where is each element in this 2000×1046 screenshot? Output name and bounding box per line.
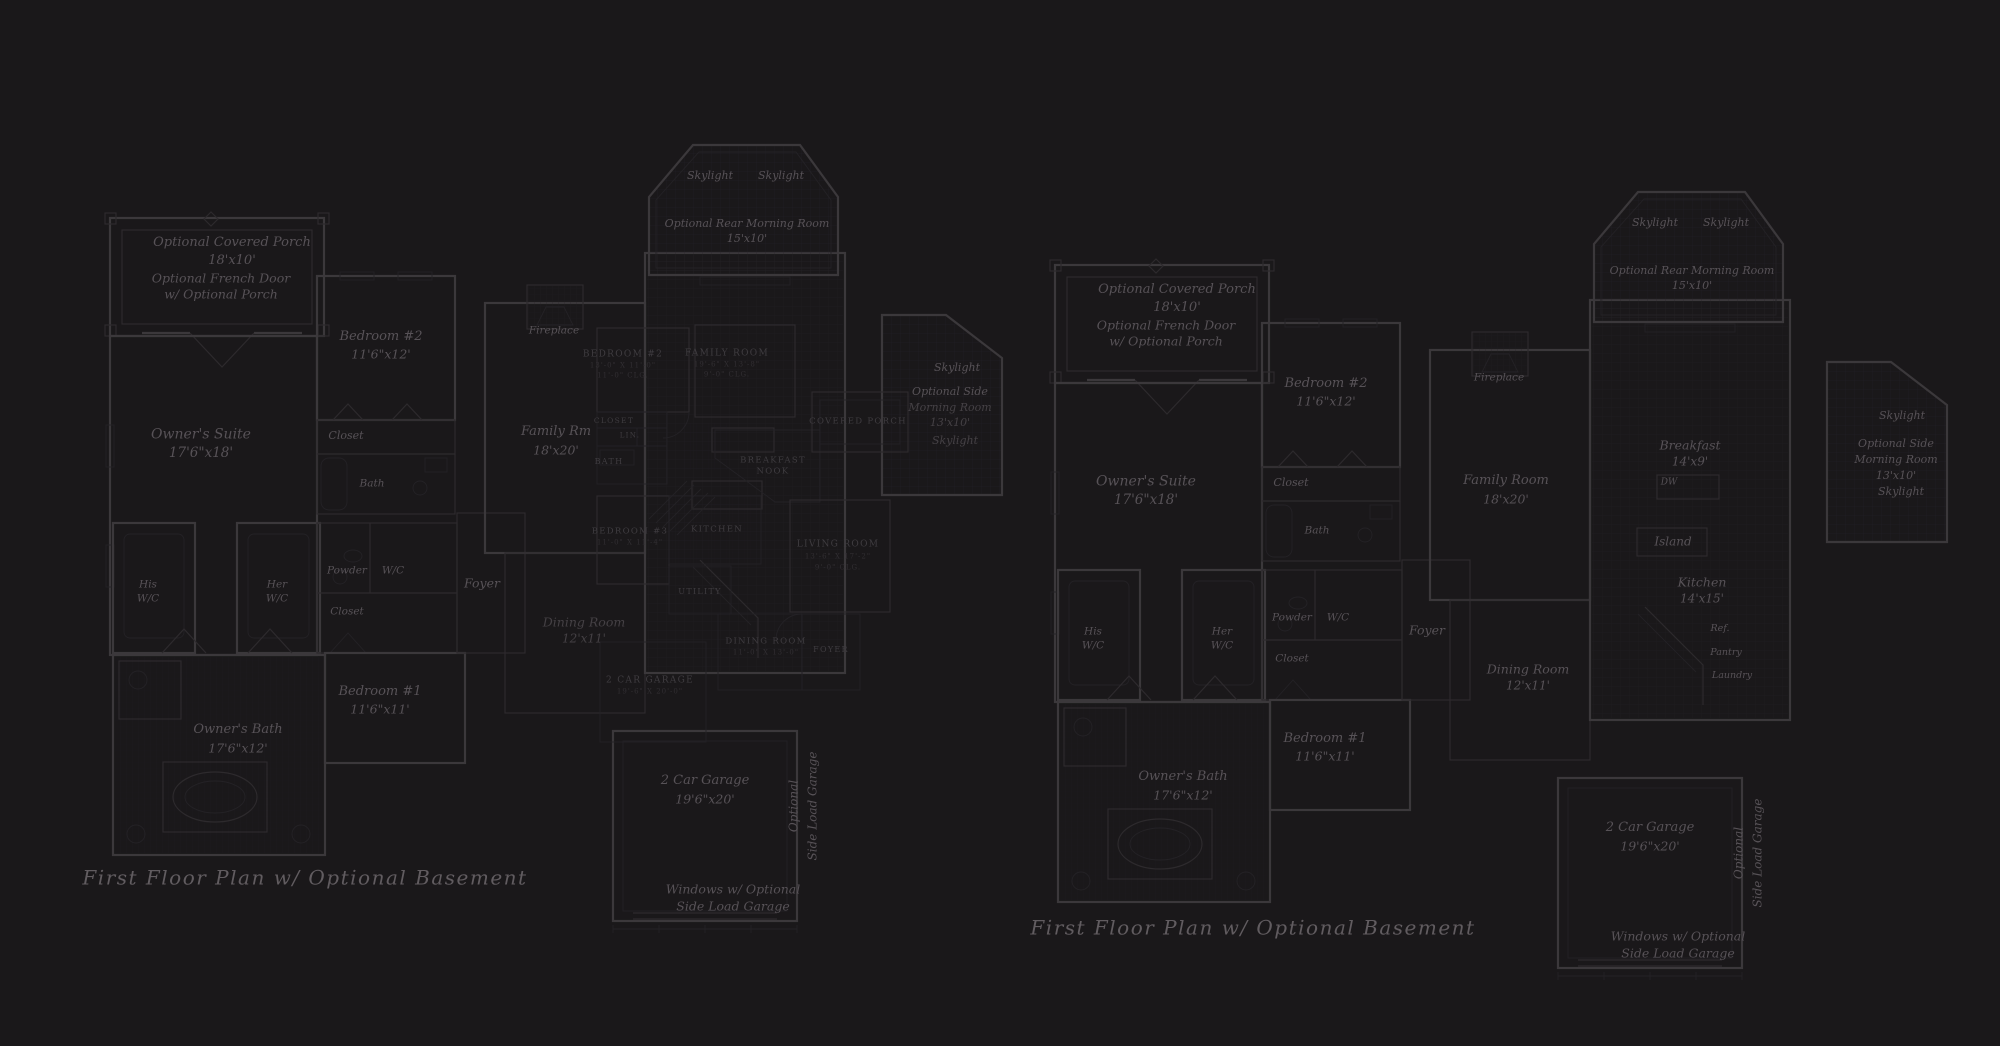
label-1: 18'x10': [208, 254, 256, 268]
label-20: Fireplace: [529, 325, 579, 336]
label-102: 12'x11': [1506, 680, 1550, 693]
label-55: BEDROOM #3: [592, 528, 669, 537]
label-88: Skylight: [1632, 217, 1678, 229]
label-22: Skylight: [758, 170, 804, 182]
label-28: 13'x10': [930, 417, 970, 429]
right-side-morning-room-label: Optional Side: [1858, 438, 1934, 450]
left-rear-morning-room-label: Optional Rear Morning Room: [665, 218, 830, 230]
label-113: 19'6"x20': [1620, 839, 1679, 852]
right-french-door-label: Optional French Door: [1097, 318, 1235, 331]
right-family-room-label: Family Room: [1463, 474, 1549, 488]
label-5: 17'6"x18': [169, 446, 233, 460]
label-99: Pantry: [1710, 648, 1741, 658]
label-35: 17'6"x12': [208, 741, 267, 754]
left-owners-suite-label: Owner's Suite: [151, 428, 251, 443]
blueprint-canvas: Optional Covered Porch18'x10'Optional Fr…: [0, 0, 2000, 1046]
label-116: Windows w/ Optional: [1611, 929, 1745, 942]
label-58: LIVING ROOM: [797, 540, 880, 549]
label-62: 11'-0" X 13'-0": [733, 649, 799, 656]
label-104: 11'6"x11': [1295, 749, 1354, 762]
left-dining-room-label: Dining Room: [543, 615, 625, 628]
label-93: 14'x9': [1672, 456, 1708, 469]
label-54: KITCHEN: [691, 526, 743, 535]
label-94: DW: [1661, 478, 1677, 487]
label-98: Ref.: [1711, 624, 1730, 634]
label-114: Optional: [1733, 827, 1746, 879]
label-57: UTILITY: [678, 588, 721, 596]
label-115: Side Load Garage: [1752, 799, 1765, 908]
right-kitchen-label: Kitchen: [1678, 575, 1727, 588]
label-87: Fireplace: [1474, 372, 1524, 383]
label-107: Skylight: [1879, 410, 1925, 422]
left-owners-bath-label: Owner's Bath: [193, 723, 282, 737]
right-bedroom-1-label: Bedroom #1: [1283, 732, 1366, 746]
label-41: Side Load Garage: [676, 899, 789, 912]
label-86: 18'x20': [1483, 492, 1529, 505]
label-38: Optional: [788, 780, 801, 832]
label-12: Her: [267, 579, 287, 590]
label-72: 17'6"x18': [1114, 493, 1178, 507]
label-65: 2 CAR GARAGE: [606, 676, 694, 685]
right-bedroom-2-label: Bedroom #2: [1284, 377, 1367, 391]
label-80: W/C: [1211, 640, 1233, 651]
label-47: 19'-6" X 13'-8": [694, 361, 760, 368]
right-island-label: Island: [1654, 536, 1691, 549]
label-70: w/ Optional Porch: [1109, 334, 1223, 347]
label-63: FOYER: [813, 646, 849, 654]
right-owners-bath-label: Owner's Bath: [1138, 770, 1227, 784]
right-breakfast-label: Breakfast: [1659, 438, 1720, 451]
label-60: 9'-0" CLG.: [815, 564, 861, 571]
label-78: W/C: [1082, 640, 1104, 651]
label-50: LIN.: [620, 432, 641, 439]
label-82: W/C: [1327, 612, 1349, 623]
label-9: Bath: [360, 478, 385, 489]
label-49: CLOSET: [594, 417, 634, 425]
label-39: Side Load Garage: [807, 752, 820, 861]
label-11: W/C: [137, 593, 159, 604]
label-66: 19'-6" X 20'-0": [617, 688, 683, 695]
label-52: BREAKFAST: [740, 457, 806, 466]
label-106: 17'6"x12': [1153, 788, 1212, 801]
label-8: Closet: [328, 430, 363, 442]
label-3: w/ Optional Porch: [164, 287, 278, 300]
label-100: Laundry: [1712, 671, 1752, 681]
label-21: Skylight: [687, 170, 733, 182]
label-77: His: [1084, 626, 1102, 637]
label-37: 19'6"x20': [675, 792, 734, 805]
right-plan-title: First Floor Plan w/ Optional Basement: [1030, 918, 1475, 939]
label-15: W/C: [382, 565, 404, 576]
label-79: Her: [1212, 626, 1232, 637]
left-french-door-label: Optional French Door: [152, 271, 290, 284]
label-7: 11'6"x12': [351, 347, 410, 360]
label-75: Closet: [1273, 477, 1308, 489]
label-43: BEDROOM #2: [583, 350, 663, 359]
label-51: BATH: [595, 458, 624, 466]
right-foyer-label: Foyer: [1409, 623, 1445, 636]
label-83: Closet: [1275, 653, 1309, 664]
label-89: Skylight: [1703, 217, 1749, 229]
label-74: 11'6"x12': [1296, 394, 1355, 407]
label-59: 13'-6" X 17'-2": [805, 553, 871, 560]
label-110: 13'x10': [1876, 470, 1916, 482]
label-91: 15'x10': [1672, 280, 1712, 292]
left-foyer-label: Foyer: [464, 576, 500, 589]
label-10: His: [139, 579, 157, 590]
left-porch-label: Optional Covered Porch: [153, 236, 311, 250]
left-bedroom-1-label: Bedroom #1: [338, 685, 421, 699]
label-46: FAMILY ROOM: [685, 349, 769, 358]
label-31: 12'x11': [562, 633, 606, 646]
label-64: COVERED PORCH: [809, 418, 907, 427]
label-16: Closet: [330, 606, 364, 617]
label-97: 14'x15': [1680, 593, 1724, 606]
right-owners-suite-label: Owner's Suite: [1096, 475, 1196, 490]
label-45: 11'-0" CLG.: [597, 372, 649, 379]
label-53: NOOK: [757, 468, 790, 477]
right-garage-label: 2 Car Garage: [1606, 821, 1695, 835]
left-bedroom-2-label: Bedroom #2: [339, 330, 422, 344]
label-33: 11'6"x11': [350, 702, 409, 715]
label-111: Skylight: [1878, 486, 1924, 498]
label-40: Windows w/ Optional: [666, 882, 800, 895]
label-117: Side Load Garage: [1621, 946, 1734, 959]
left-garage-label: 2 Car Garage: [661, 774, 750, 788]
label-14: Powder: [327, 565, 367, 576]
label-44: 13'-0" X 11'-0": [590, 362, 656, 369]
label-24: 15'x10': [727, 233, 767, 245]
label-29: Skylight: [932, 435, 978, 447]
left-side-morning-room-label: Optional Side: [912, 386, 988, 398]
left-family-room-label: Family Rm: [521, 425, 591, 439]
labels-layer: Optional Covered Porch18'x10'Optional Fr…: [0, 0, 2000, 1046]
label-56: 11'-0" X 11'-4": [597, 539, 663, 546]
label-109: Morning Room: [1854, 454, 1937, 466]
label-76: Bath: [1305, 525, 1330, 536]
label-19: 18'x20': [533, 443, 579, 456]
left-plan-title: First Floor Plan w/ Optional Basement: [82, 868, 527, 889]
label-68: 18'x10': [1153, 301, 1201, 315]
label-13: W/C: [266, 593, 288, 604]
right-dining-room-label: Dining Room: [1487, 662, 1569, 675]
label-25: Skylight: [934, 362, 980, 374]
right-porch-label: Optional Covered Porch: [1098, 283, 1256, 297]
label-61: DINING ROOM: [725, 638, 806, 647]
label-81: Powder: [1272, 612, 1312, 623]
right-rear-morning-room-label: Optional Rear Morning Room: [1610, 265, 1775, 277]
label-48: 9'-0" CLG.: [704, 371, 750, 378]
label-27: Morning Room: [908, 402, 991, 414]
